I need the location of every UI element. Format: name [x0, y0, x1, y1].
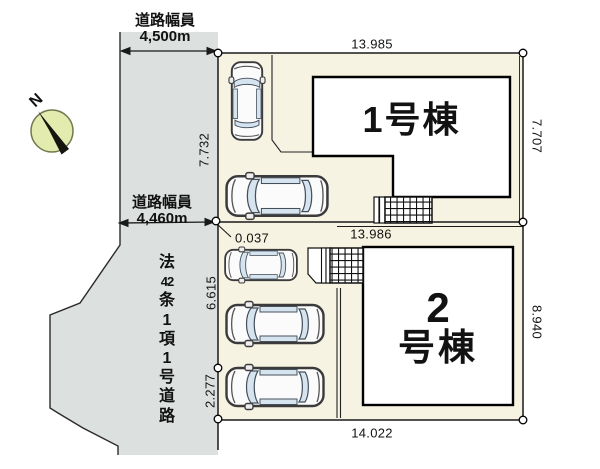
- boundary-marker: [214, 49, 222, 57]
- car-icon: [229, 62, 265, 140]
- building-2-porch-grid: [330, 248, 363, 283]
- dimension-lot1-left: 7.732: [197, 133, 212, 167]
- car-icon: [227, 173, 328, 220]
- dimension-lot1-top: 13.985: [351, 37, 393, 52]
- road-width-label-mid: 道路幅員 4,460m: [103, 195, 221, 227]
- building-2-label-line2: 号棟: [398, 329, 478, 366]
- dimension-lot2-left-upper: 6.615: [204, 276, 219, 310]
- boundary-marker: [519, 416, 527, 424]
- dimension-lot2-right: 8.940: [530, 305, 545, 339]
- dimension-lot2-top: 13.986: [350, 227, 392, 242]
- building-1-label: 1号棟: [313, 77, 510, 156]
- dimension-lot1-right: 7.707: [530, 119, 545, 153]
- road-width-label-top: 道路幅員 4,500m: [106, 13, 224, 45]
- dimension-lot2-left-lower: 2.277: [203, 374, 218, 408]
- road-width-value: 4,500m: [106, 29, 224, 45]
- site-plan: 道路幅員 4,500m 道路幅員 4,460m 法 42 条 1 項 1 号 道…: [0, 0, 600, 469]
- road-width-title: 道路幅員: [103, 195, 221, 211]
- road-width-value: 4,460m: [103, 211, 221, 227]
- building-2-label-line1: 2: [426, 287, 449, 329]
- compass-icon: [31, 110, 73, 155]
- boundary-marker: [519, 218, 527, 226]
- building-2-label: 2 号棟: [363, 247, 513, 405]
- building-1-porch-grid: [385, 197, 432, 223]
- boundary-marker: [214, 364, 222, 372]
- car-icon: [227, 302, 324, 347]
- boundary-marker: [214, 415, 222, 423]
- road-type-label: 法 42 条 1 項 1 号 道 路: [157, 253, 177, 426]
- building-2-porch: [308, 248, 363, 283]
- boundary-marker: [519, 49, 527, 57]
- road-area: [50, 32, 218, 455]
- car-icon: [225, 247, 297, 283]
- building-1-porch: [374, 197, 432, 223]
- dimension-lot2-bottom: 14.022: [351, 426, 393, 441]
- road-width-title: 道路幅員: [106, 13, 224, 29]
- car-icon: [227, 365, 324, 410]
- dimension-lot2-offset: 0.037: [235, 231, 269, 246]
